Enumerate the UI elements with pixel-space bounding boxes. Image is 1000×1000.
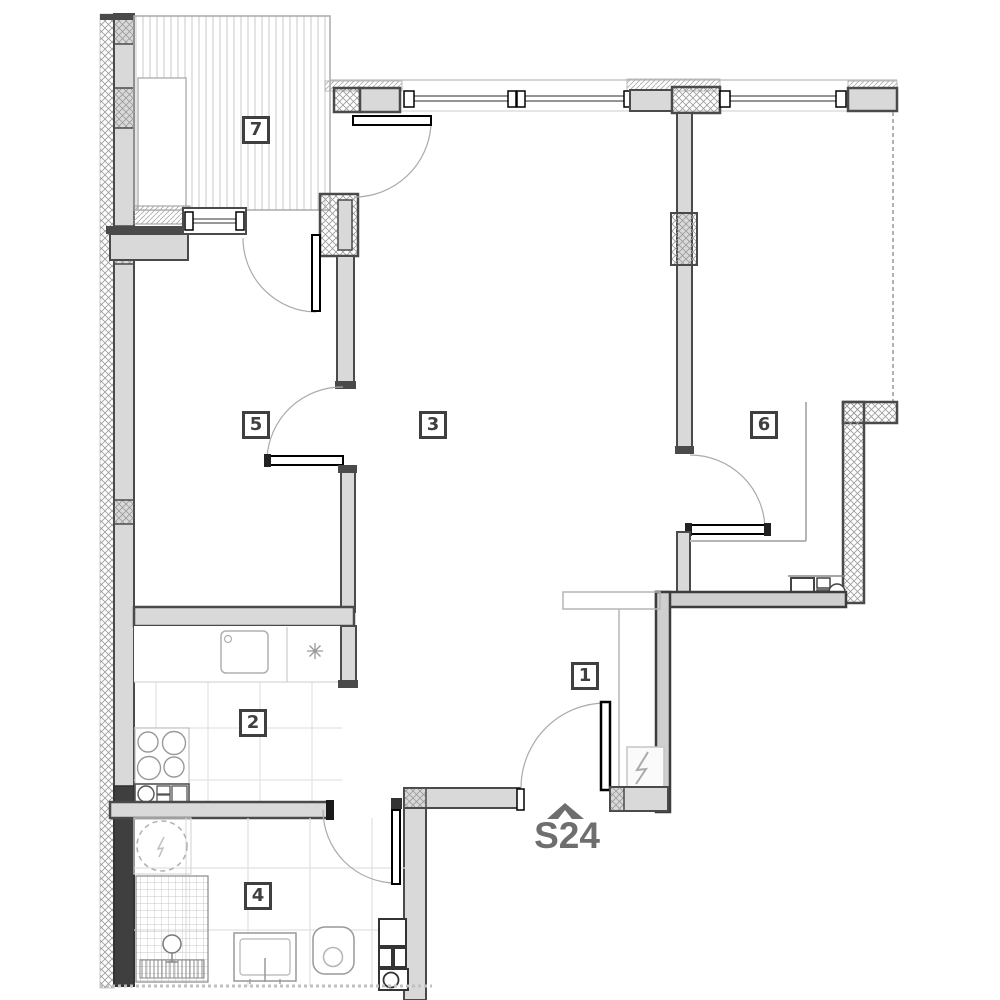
door-leaf — [353, 116, 431, 125]
window-symbol-top-left — [404, 91, 634, 107]
wall-room6-right — [843, 402, 897, 603]
cooktop-icon — [135, 728, 189, 784]
door-leaf — [312, 235, 320, 311]
shower-icon — [136, 876, 208, 982]
radiator-sill — [110, 234, 188, 260]
bathroom-sink-icon — [234, 933, 296, 984]
door-room6 — [677, 455, 771, 596]
room-label-1: 1 — [571, 662, 599, 690]
window-symbol-top-right — [720, 91, 846, 107]
room-label-4: 4 — [244, 882, 272, 910]
top-exterior-wall — [325, 79, 897, 113]
door-swing-arc — [690, 455, 765, 529]
shower-drain-icon — [140, 960, 204, 978]
door-swing-arc — [267, 387, 343, 458]
door-room5-balcony — [243, 235, 320, 312]
wardrobe-outline — [690, 402, 806, 541]
room-label-6: 6 — [750, 411, 778, 439]
toilet-icon — [313, 927, 354, 974]
window-symbol-balcony — [183, 208, 246, 234]
exterior-left-wall — [100, 14, 134, 988]
bathroom-cabinet-icon — [379, 919, 408, 990]
room-label-7: 7 — [242, 116, 270, 144]
kitchen-sink-icon — [221, 631, 268, 673]
room-label-2: 2 — [239, 709, 267, 737]
unit-label: S24 — [531, 817, 603, 855]
door-swing-arc — [354, 125, 431, 197]
door-swing-arc — [243, 238, 316, 312]
wall-room3-room6 — [671, 113, 697, 454]
door-swing-arc — [521, 703, 606, 788]
door-room3-balcony — [353, 116, 431, 197]
floor-plan-drawing — [0, 0, 1000, 1000]
floor-plan: 7 5 3 6 2 1 4 S24 — [0, 0, 1000, 1000]
pier-room5-room3 — [320, 194, 358, 389]
electrical-panel-icon — [627, 747, 664, 788]
wall-entry-corridor — [656, 592, 846, 812]
door-leaf — [601, 702, 610, 790]
door-leaf — [688, 525, 767, 534]
room-label-3: 3 — [419, 411, 447, 439]
room-label-5: 5 — [242, 411, 270, 439]
door-leaf — [266, 456, 343, 465]
door-leaf — [392, 810, 400, 884]
